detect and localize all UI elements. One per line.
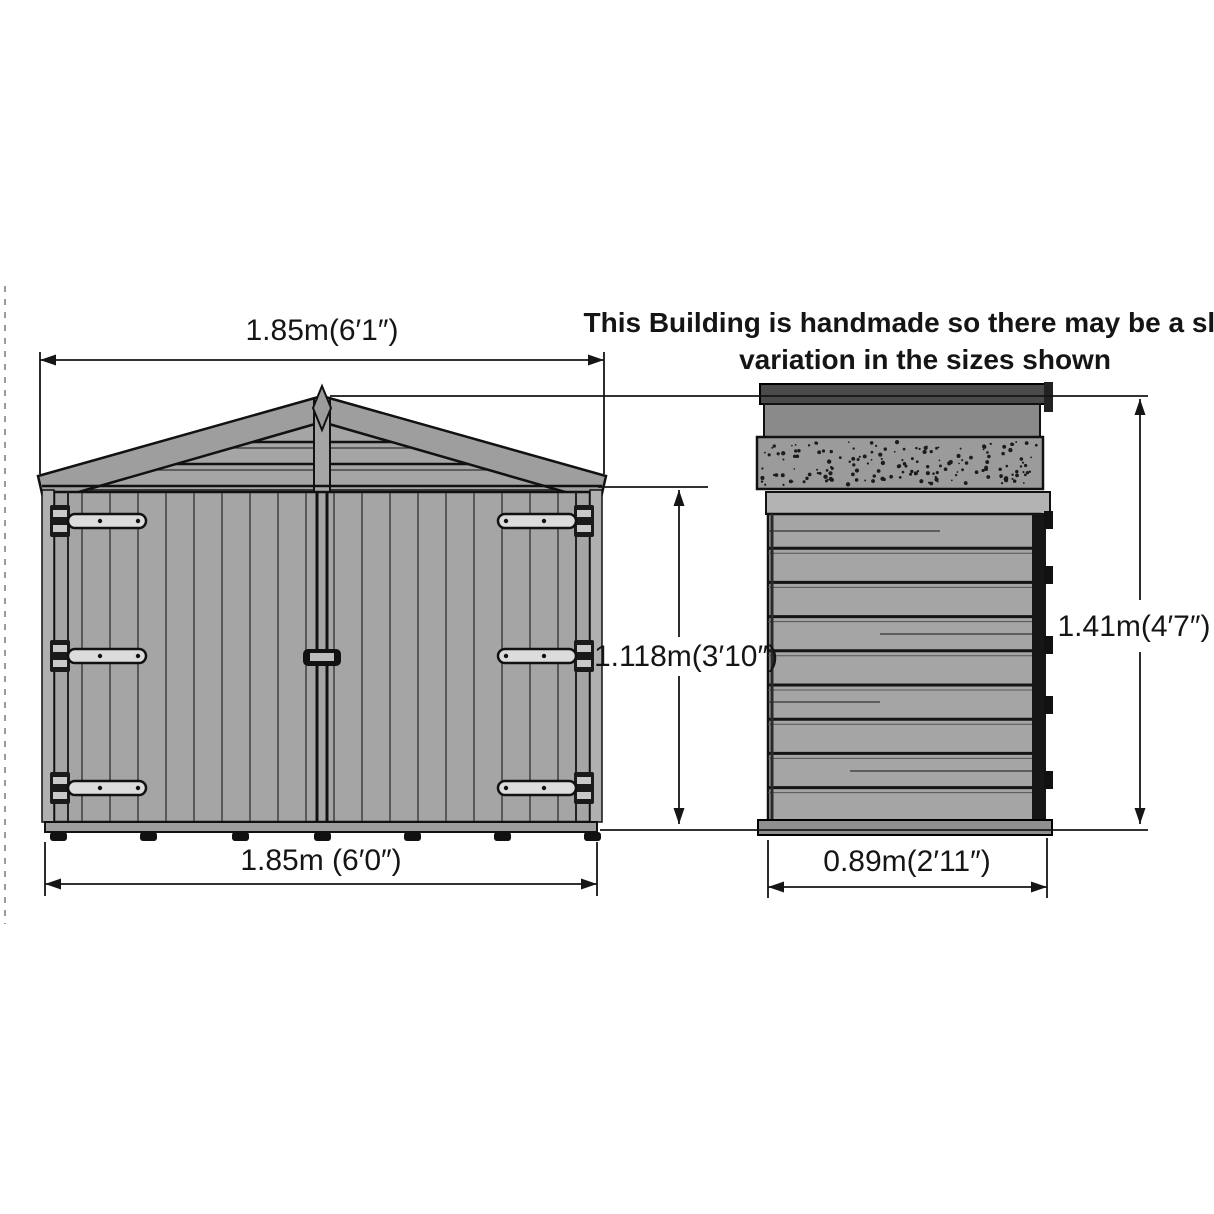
side-base-skid — [758, 820, 1052, 835]
side-elevation — [757, 382, 1053, 835]
side-wall — [768, 514, 1040, 822]
roof-fascia-band — [764, 404, 1040, 437]
front-base-rail — [45, 822, 597, 832]
corner-trim — [1032, 514, 1046, 822]
technical-drawing: This Building is handmade so there may b… — [0, 0, 1214, 1214]
roof-cap — [760, 384, 1050, 404]
handmade-note-line2: variation in the sizes shown — [739, 344, 1111, 375]
roof-felt-band — [757, 437, 1043, 489]
dim-overall-height: 1.41m(4′7″) — [1058, 610, 1211, 643]
shed-dimension-diagram: This Building is handmade so there may b… — [0, 0, 1214, 1214]
base-feet — [50, 832, 601, 841]
door-latch-slot — [310, 653, 334, 661]
handmade-note-line1: This Building is handmade so there may b… — [583, 307, 1214, 338]
dim-side-depth: 0.89m(2′11″) — [823, 845, 990, 878]
dim-front-width-overall: 1.85m(6′1″) — [246, 314, 399, 347]
front-elevation — [38, 386, 606, 841]
dim-door-height: 1.118m(3′10″) — [594, 640, 778, 673]
bargeboard-end — [1044, 382, 1053, 412]
eaves-trim-band — [766, 492, 1050, 514]
dim-front-width-base: 1.85m (6′0″) — [240, 844, 401, 877]
